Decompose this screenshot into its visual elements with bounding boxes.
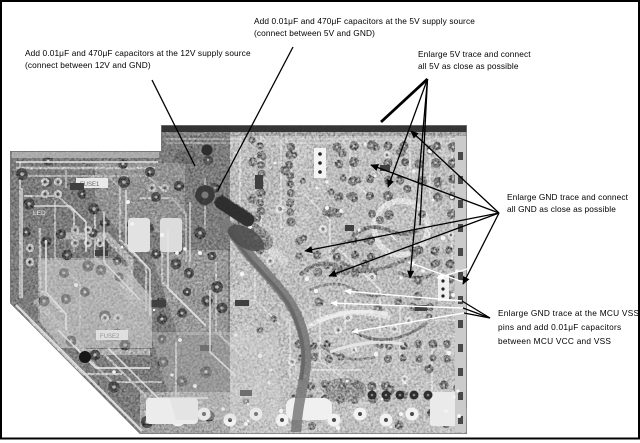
svg-text:LED: LED	[33, 210, 46, 217]
